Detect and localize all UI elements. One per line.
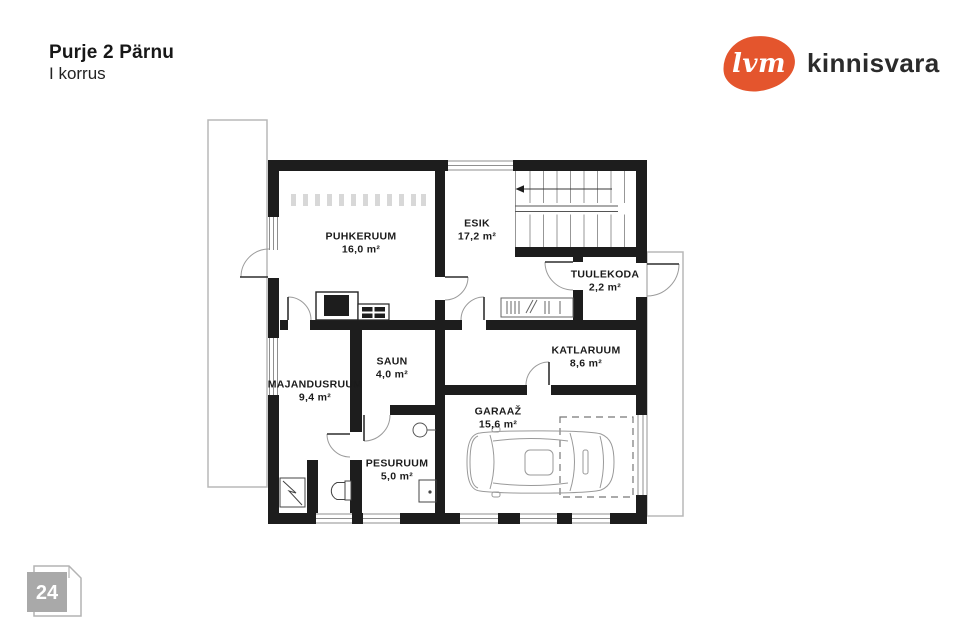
room-name: PUHKERUUM <box>326 231 397 244</box>
shower <box>280 478 305 507</box>
room-area: 4,0 m² <box>376 368 408 381</box>
page-title: Purje 2 Pärnu <box>49 42 174 64</box>
room-area: 5,0 m² <box>366 470 429 483</box>
car <box>467 427 614 497</box>
staircase <box>515 171 625 247</box>
room-name: SAUN <box>376 356 408 369</box>
toilet <box>331 481 351 500</box>
room-label-majandusruum: MAJANDUSRUUM 9,4 m² <box>268 379 363 404</box>
room-area: 8,6 m² <box>552 357 621 370</box>
washing-machine <box>419 480 436 502</box>
room-label-katlaruum: KATLARUUM 8,6 m² <box>552 345 621 370</box>
room-name: MAJANDUSRUUM <box>268 379 363 392</box>
sink <box>413 423 436 437</box>
room-name: PESURUUM <box>366 458 429 471</box>
room-name: KATLARUUM <box>552 345 621 358</box>
room-label-garaaz: GARAAŽ 15,6 m² <box>475 406 522 431</box>
garage-door <box>638 415 643 495</box>
brand-name: kinnisvara <box>807 48 940 79</box>
fireplace <box>316 292 358 320</box>
walls <box>268 160 647 524</box>
page-number-badge: 24 <box>20 558 90 628</box>
room-label-pesuruum: PESURUUM 5,0 m² <box>366 458 429 483</box>
floor-plan-drawing <box>190 100 700 540</box>
lvm-logo-icon: lvm <box>720 32 797 94</box>
room-area: 15,6 m² <box>475 418 522 431</box>
room-name: TUULEKODA <box>571 269 640 282</box>
page-number: 24 <box>36 582 59 604</box>
coat-rack <box>501 298 573 317</box>
terrace-outline <box>208 120 267 487</box>
stair-direction-arrow <box>516 185 525 193</box>
floorplan-page: Purje 2 Pärnu I korrus lvm kinnisvara <box>0 0 960 640</box>
parking-zone-dashed <box>560 417 633 497</box>
stove <box>358 304 389 320</box>
room-area: 17,2 m² <box>458 230 496 243</box>
room-label-tuulekoda: TUULEKODA 2,2 m² <box>571 269 640 294</box>
floor-subtitle: I korrus <box>49 64 106 84</box>
room-area: 2,2 m² <box>571 281 640 294</box>
room-area: 9,4 m² <box>268 391 363 404</box>
entrance-landing-outline <box>647 252 683 516</box>
lvm-logo-mark: lvm <box>732 49 786 79</box>
radiator-hatch <box>291 194 426 206</box>
room-area: 16,0 m² <box>326 243 397 256</box>
room-label-saun: SAUN 4,0 m² <box>376 356 408 381</box>
room-label-puhkeruum: PUHKERUUM 16,0 m² <box>326 231 397 256</box>
room-label-esik: ESIK 17,2 m² <box>458 218 496 243</box>
room-name: GARAAŽ <box>475 406 522 419</box>
room-name: ESIK <box>458 218 496 231</box>
